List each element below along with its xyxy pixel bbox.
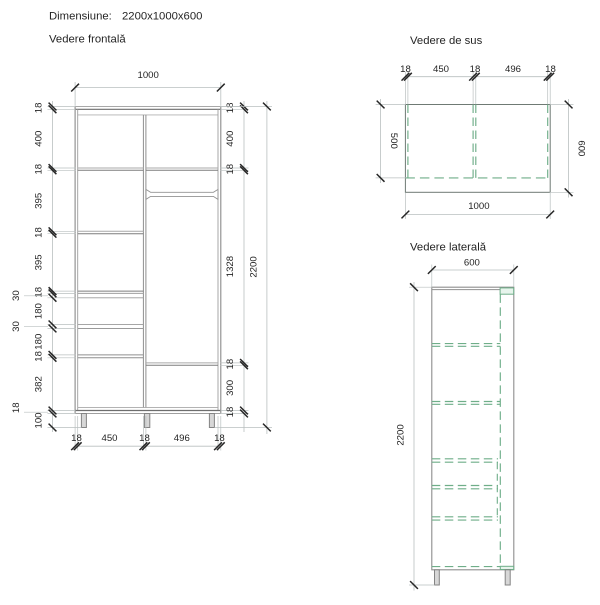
svg-text:18: 18 <box>34 164 45 175</box>
svg-text:18: 18 <box>34 103 45 114</box>
svg-text:300: 300 <box>225 380 236 396</box>
svg-text:18: 18 <box>400 64 411 75</box>
svg-text:600: 600 <box>575 140 586 156</box>
svg-text:Dimensiune:: Dimensiune: <box>49 11 112 23</box>
svg-text:Vedere frontală: Vedere frontală <box>49 34 126 46</box>
svg-text:1000: 1000 <box>468 201 489 212</box>
svg-text:100: 100 <box>34 412 45 428</box>
svg-text:18: 18 <box>225 359 236 370</box>
svg-text:500: 500 <box>388 133 399 149</box>
svg-text:382: 382 <box>34 376 45 392</box>
svg-text:Vedere laterală: Vedere laterală <box>410 242 487 254</box>
svg-text:18: 18 <box>545 64 556 75</box>
svg-text:18: 18 <box>214 433 225 444</box>
svg-text:18: 18 <box>34 227 45 238</box>
svg-text:18: 18 <box>225 103 236 114</box>
svg-text:18: 18 <box>11 402 22 413</box>
svg-text:18: 18 <box>34 351 45 362</box>
svg-text:395: 395 <box>34 193 45 209</box>
svg-text:30: 30 <box>11 321 22 332</box>
svg-text:180: 180 <box>34 334 45 350</box>
svg-text:400: 400 <box>225 131 236 147</box>
svg-text:450: 450 <box>433 64 449 75</box>
svg-text:2200: 2200 <box>396 424 407 445</box>
svg-text:496: 496 <box>505 64 521 75</box>
svg-text:Vedere de sus: Vedere de sus <box>410 35 483 47</box>
svg-text:18: 18 <box>225 407 236 418</box>
svg-text:1000: 1000 <box>138 70 159 81</box>
svg-text:395: 395 <box>34 254 45 270</box>
svg-text:18: 18 <box>71 433 82 444</box>
svg-text:2200x1000x600: 2200x1000x600 <box>122 11 202 23</box>
svg-text:450: 450 <box>101 433 117 444</box>
svg-text:1328: 1328 <box>225 256 236 277</box>
svg-text:400: 400 <box>34 131 45 147</box>
svg-text:180: 180 <box>34 303 45 319</box>
svg-text:18: 18 <box>470 64 481 75</box>
svg-text:600: 600 <box>464 257 480 268</box>
svg-text:18: 18 <box>225 164 236 175</box>
svg-text:30: 30 <box>11 290 22 301</box>
svg-text:2200: 2200 <box>248 256 259 277</box>
svg-text:18: 18 <box>139 433 150 444</box>
svg-text:496: 496 <box>174 433 190 444</box>
